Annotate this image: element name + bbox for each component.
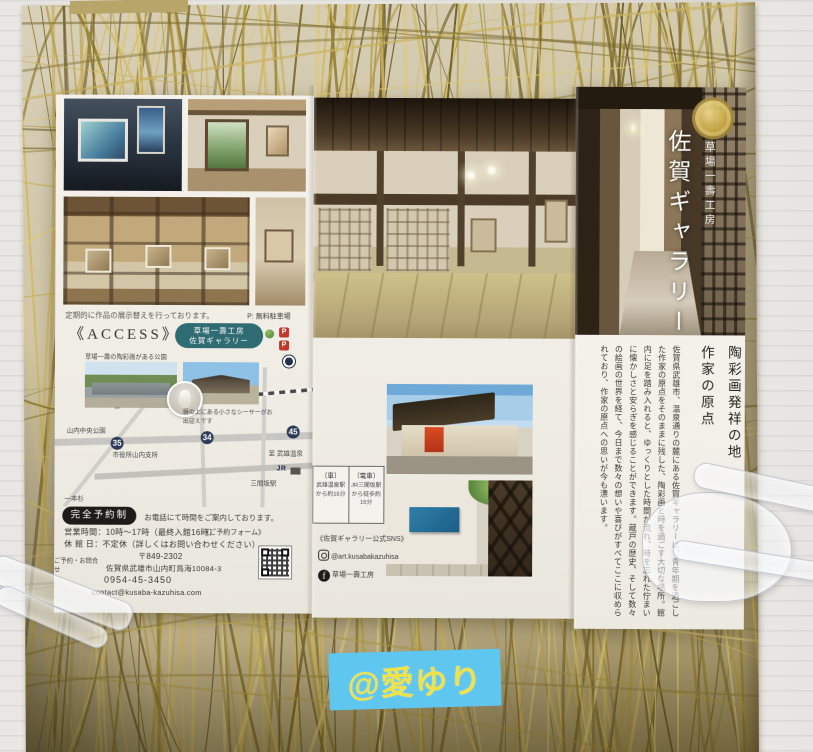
blue-gallery-sign: [410, 507, 460, 532]
hours-value: 10時〜17時（最終入館16時）: [106, 528, 218, 537]
photos-caption: 定期的に作品の展示替えを行っております。: [65, 310, 214, 322]
artwork-frame: [205, 247, 231, 271]
artwork-frame: [544, 199, 568, 242]
gallery-name-badge: 草場一壽工房 佐賀ギャラリー: [175, 323, 263, 349]
wood-pillar: [528, 151, 536, 266]
artwork-frame: [86, 248, 112, 272]
gold-crest-icon: [692, 97, 734, 139]
parking-note: P: 無料駐車場: [247, 311, 291, 321]
qr-corner: [261, 548, 269, 556]
artwork-frame: [471, 218, 497, 252]
artwork-frame: [266, 125, 290, 156]
qr-corner: [281, 548, 289, 556]
gallery-interior-photo-4: [255, 197, 305, 305]
map-label-station: 三間坂駅: [250, 477, 276, 487]
exterior-photo-entrance: [386, 480, 532, 577]
panel-access: 定期的に作品の展示替えを行っております。 《ACCESS》 P: 無料駐車場 草…: [54, 94, 314, 613]
route-badge-34: 34: [201, 431, 214, 444]
car-label: 〔車〕: [315, 470, 346, 480]
transport-info-box: 〔車〕 武雄温泉駅から約15分 〔電車〕 JR三間坂駅から徒歩約15分: [312, 466, 384, 524]
pendant-light: [466, 170, 476, 180]
wood-ceiling: [314, 98, 576, 152]
reservation-badge: 完全予約制: [62, 507, 136, 525]
photo-scene: 定期的に作品の展示替えを行っております。 《ACCESS》 P: 無料駐車場 草…: [0, 0, 813, 752]
hours-label: 営業時間：: [64, 528, 106, 537]
gallery-interior-photo-3: [63, 197, 249, 306]
wood-pillar: [376, 151, 384, 266]
park-caption: 草場一壽の陶彩画がある公園: [85, 352, 167, 361]
park-building: [92, 382, 169, 394]
tatami-floor: [313, 273, 575, 339]
facebook-name: 草場一壽工房: [332, 572, 374, 579]
map-label-landmark: 一本杉: [64, 493, 84, 503]
artwork-frame: [145, 244, 171, 268]
shisa-caption: 塀の上にある小さなシーサーがお出迎えです: [183, 409, 275, 427]
parking-icon: P: [279, 340, 289, 350]
reservation-note: お電話にて時間をご案内しております。: [144, 512, 278, 524]
watermark-badge: @愛ゆり: [328, 649, 502, 711]
wood-pillar: [457, 151, 465, 266]
pendant-light: [487, 166, 497, 176]
wood-beam: [314, 194, 576, 206]
transport-by-car: 〔車〕 武雄温泉駅から約15分: [313, 467, 348, 523]
badge-line1: 草場一壽工房: [179, 326, 259, 336]
watermark-text: @愛ゆり: [347, 654, 483, 706]
stone-base: [386, 564, 488, 576]
shoji-screen: [387, 208, 450, 271]
access-heading: 《ACCESS》: [69, 323, 180, 344]
reservation-form-label: 《ご予約フォーム》: [202, 527, 265, 537]
map-label-direction: 至 武雄温泉: [269, 447, 303, 457]
route-badge-45: 45: [287, 426, 300, 439]
train-detail: JR三間坂駅から徒歩約15分: [351, 482, 382, 508]
artwork-frame: [78, 119, 128, 162]
instagram-row: @art.kusabakazuhisa: [318, 550, 398, 561]
right-acrylic-clip: [632, 462, 813, 632]
jr-logo: JR: [276, 465, 286, 472]
gallery-interior-photo-1: [64, 99, 182, 192]
white-wall: [401, 425, 518, 456]
tree-icon: [265, 329, 274, 338]
pendant-lamp: [629, 122, 638, 134]
map-pin-icon: [283, 355, 295, 367]
window: [204, 119, 249, 171]
red-door: [425, 427, 444, 452]
map-label-park: 山内中央公園: [67, 425, 106, 435]
mat-edge-tab: [70, 0, 188, 14]
tatami-room-photo: [313, 98, 576, 339]
shisa-figure: [179, 390, 191, 408]
wooden-gate: [488, 480, 532, 576]
transport-by-train: 〔電車〕 JR三間坂駅から徒歩約15分: [348, 467, 384, 523]
shoji-screen: [319, 208, 372, 271]
left-acrylic-clip: [0, 540, 156, 670]
car-detail: 武雄温泉駅から約15分: [315, 482, 346, 500]
train-label: 〔電車〕: [351, 470, 382, 480]
gallery-interior-photo-2: [188, 99, 306, 192]
qr-corner: [261, 568, 269, 576]
wood-beam: [188, 110, 306, 115]
park-photo: [85, 362, 177, 408]
hours-line: 営業時間：10時〜17時（最終入館16時）: [64, 527, 217, 539]
artwork-frame: [264, 230, 293, 263]
cover-title-gallery: 佐賀ギャラリー: [659, 129, 694, 343]
sns-label: 《佐賀ギャラリー公式SNS》: [316, 534, 407, 544]
exterior-photo-roof: [386, 384, 532, 475]
parking-icon: P: [279, 327, 289, 337]
reservation-qr-code: [258, 545, 292, 579]
artwork-frame: [137, 106, 166, 154]
instagram-icon: [318, 550, 329, 561]
instagram-handle: @art.kusabakazuhisa: [331, 554, 398, 561]
map-label-city-office: 市役所山内支所: [113, 449, 159, 459]
facebook-icon: f: [318, 570, 330, 582]
cover-title-studio: 草場一壽工房: [701, 141, 717, 321]
badge-line2: 佐賀ギャラリー: [179, 336, 259, 346]
facebook-row: f 草場一壽工房: [318, 570, 374, 582]
